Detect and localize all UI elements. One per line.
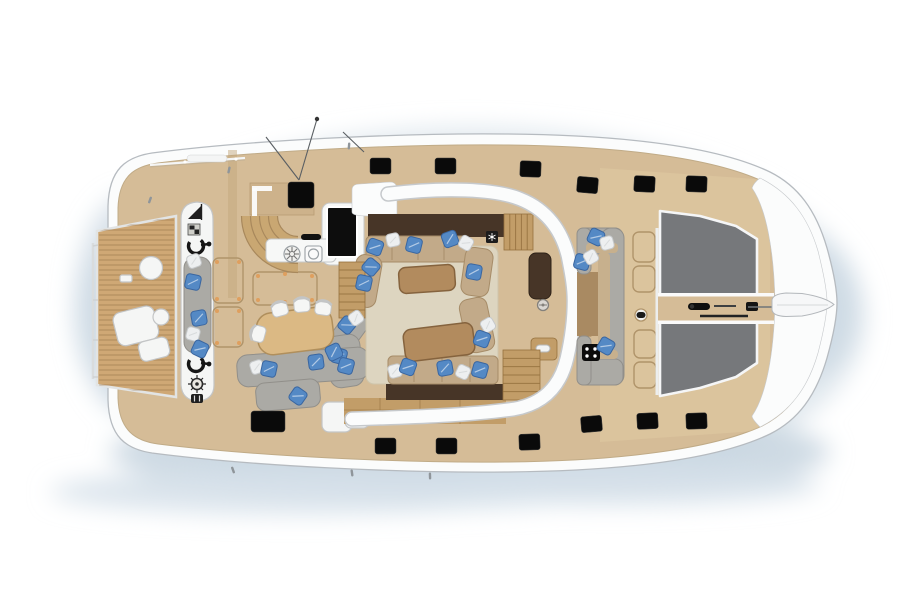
cabinet-trim — [252, 186, 272, 191]
helm-console — [181, 202, 214, 403]
side-table — [153, 309, 169, 325]
screw-dot — [237, 297, 241, 301]
salon-sideboard — [368, 214, 506, 237]
screw-dot — [215, 260, 219, 264]
walkway-edge — [658, 293, 774, 297]
windlass-drum — [690, 304, 694, 308]
deck-hatch — [519, 434, 541, 451]
dining-chair — [314, 299, 332, 316]
deck-hatch — [580, 415, 602, 433]
deck-hatch — [686, 176, 708, 193]
white-pillow — [385, 232, 400, 247]
throttle-icon — [191, 394, 203, 403]
cabinet-trim — [252, 188, 257, 218]
blue-pillow — [405, 236, 423, 254]
deck-hatch — [634, 175, 656, 192]
blue-pillow — [436, 359, 453, 376]
screw-dot — [237, 309, 241, 313]
screw-dot — [283, 272, 287, 276]
salon-console — [529, 253, 551, 299]
screw-dot — [256, 274, 260, 278]
rail-tick — [93, 245, 98, 246]
stairway — [503, 350, 540, 400]
blue-pillow — [471, 361, 489, 379]
screw-dot — [237, 260, 241, 264]
deck-plan-canvas — [0, 0, 900, 600]
walkway-edge — [658, 321, 774, 325]
helm-wheel-icon — [486, 231, 498, 243]
burner-icon — [284, 246, 300, 262]
blue-pillow — [465, 263, 482, 280]
coffee-table — [398, 264, 456, 294]
deck-hatch — [576, 176, 598, 194]
deck-hatch — [520, 161, 542, 178]
platform-accessory — [120, 275, 132, 282]
aft-platform — [93, 216, 176, 397]
blue-pillow — [190, 309, 207, 326]
cabin-hatch — [288, 182, 314, 208]
blue-pillow — [184, 273, 202, 291]
screw-dot — [215, 297, 219, 301]
salon-cabinet-aft — [386, 384, 504, 400]
catamaran-deck-plan — [0, 0, 900, 600]
rail-post — [234, 157, 237, 160]
grill-hatch — [327, 207, 357, 257]
screw-dot — [215, 309, 219, 313]
screw-dot — [310, 298, 314, 302]
faucet-knob — [317, 235, 321, 239]
screw-dot — [310, 274, 314, 278]
white-pillow — [185, 326, 201, 342]
winch-icon — [538, 300, 549, 311]
blue-pillow — [260, 360, 278, 378]
screw-dot — [237, 341, 241, 345]
chart-plotter-icon — [188, 224, 200, 235]
deck-hatch — [436, 438, 457, 454]
round-cocktail-table — [140, 257, 163, 280]
white-pillow — [599, 235, 615, 251]
rigging-fitting — [315, 117, 319, 121]
stair-block — [504, 214, 533, 250]
dining-chair — [293, 297, 310, 313]
blue-pillow — [337, 357, 355, 375]
cabin-hatch — [251, 411, 285, 432]
deck-hatch — [370, 158, 391, 174]
screw-dot — [256, 298, 260, 302]
forward-cockpit — [577, 228, 624, 385]
screw-dot — [215, 341, 219, 345]
deck-hatch — [686, 413, 708, 430]
cockpit-floor — [577, 272, 599, 336]
deck-hatch — [375, 438, 396, 454]
counter-strip — [266, 239, 336, 262]
sun-bench — [255, 378, 321, 411]
deck-hatch — [435, 158, 456, 174]
sink-icon — [305, 246, 322, 262]
rail-step — [187, 155, 227, 162]
platform-slats — [99, 220, 174, 390]
stairway — [504, 214, 533, 250]
blue-pillow — [308, 354, 325, 371]
bow-locker-handle — [635, 309, 647, 321]
rail-post — [183, 160, 186, 163]
cleat — [429, 472, 432, 479]
blue-pillow — [355, 274, 373, 292]
deck-hatch — [637, 412, 659, 429]
